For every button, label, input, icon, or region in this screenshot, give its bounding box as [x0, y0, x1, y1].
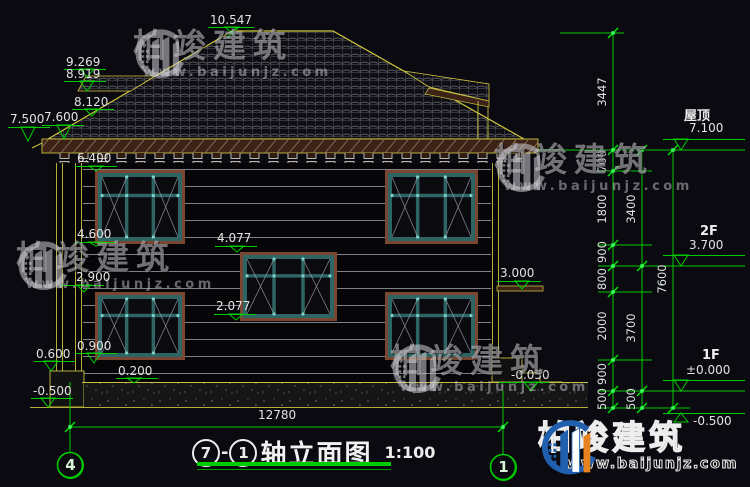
level-annotation: 3.700 — [689, 239, 723, 252]
level-annotation: 10.547 — [210, 14, 252, 27]
company-logo-icon — [538, 420, 598, 482]
chain-dimension-label: 3700 — [624, 300, 638, 356]
level-annotation: ±0.000 — [686, 364, 730, 377]
ground-hatch — [84, 383, 588, 407]
level-annotation: 2.900 — [76, 271, 110, 284]
rafter-tails — [56, 153, 522, 163]
level-annotation: 3.000 — [500, 267, 534, 280]
axis-bubble-4: 4 — [57, 452, 84, 479]
roof — [32, 31, 524, 148]
level-annotation: 4.600 — [77, 228, 111, 241]
title-scale: 1:100 — [385, 443, 436, 462]
chain-dimension-label: 7600 — [655, 251, 669, 307]
level-annotation: 7.500 — [10, 113, 44, 126]
floor-label-1f: 1F — [702, 348, 720, 363]
level-annotation: 7.600 — [44, 111, 78, 124]
floor-label-2f: 2F — [700, 224, 718, 239]
level-annotation: 2.077 — [216, 300, 250, 313]
title-underline-thin — [197, 469, 391, 470]
level-annotation: 7.100 — [689, 122, 723, 135]
eave-band — [42, 139, 538, 163]
bottom-dimension-text: 12780 — [258, 409, 296, 422]
level-annotation: -0.500 — [33, 385, 72, 398]
level-annotation: 4.077 — [217, 232, 251, 245]
level-annotation: 6.400 — [77, 152, 111, 165]
level-annotation: 8.919 — [66, 68, 100, 81]
level-annotation: 0.900 — [77, 340, 111, 353]
chain-dimension-label: 3400 — [624, 181, 638, 237]
level-annotation: -0.050 — [511, 369, 550, 382]
window — [385, 170, 478, 244]
company-logo: 柏竣建筑 www.baijunjz.com — [538, 420, 738, 472]
chain-dimension-label: 3447 — [595, 64, 609, 120]
window — [240, 252, 337, 321]
window — [385, 292, 478, 360]
axis-bubble-1: 1 — [490, 454, 517, 481]
level-annotation: 0.200 — [118, 365, 152, 378]
level-annotation: 8.120 — [74, 96, 108, 109]
cad-elevation-drawing: 屋顶 2F 1F 12780 4 1 7 - 1 轴立面图 1:100 柏竣建筑… — [0, 0, 750, 487]
level-annotation: 0.600 — [36, 348, 70, 361]
title-underline — [197, 462, 391, 466]
title-dash: - — [221, 442, 228, 463]
